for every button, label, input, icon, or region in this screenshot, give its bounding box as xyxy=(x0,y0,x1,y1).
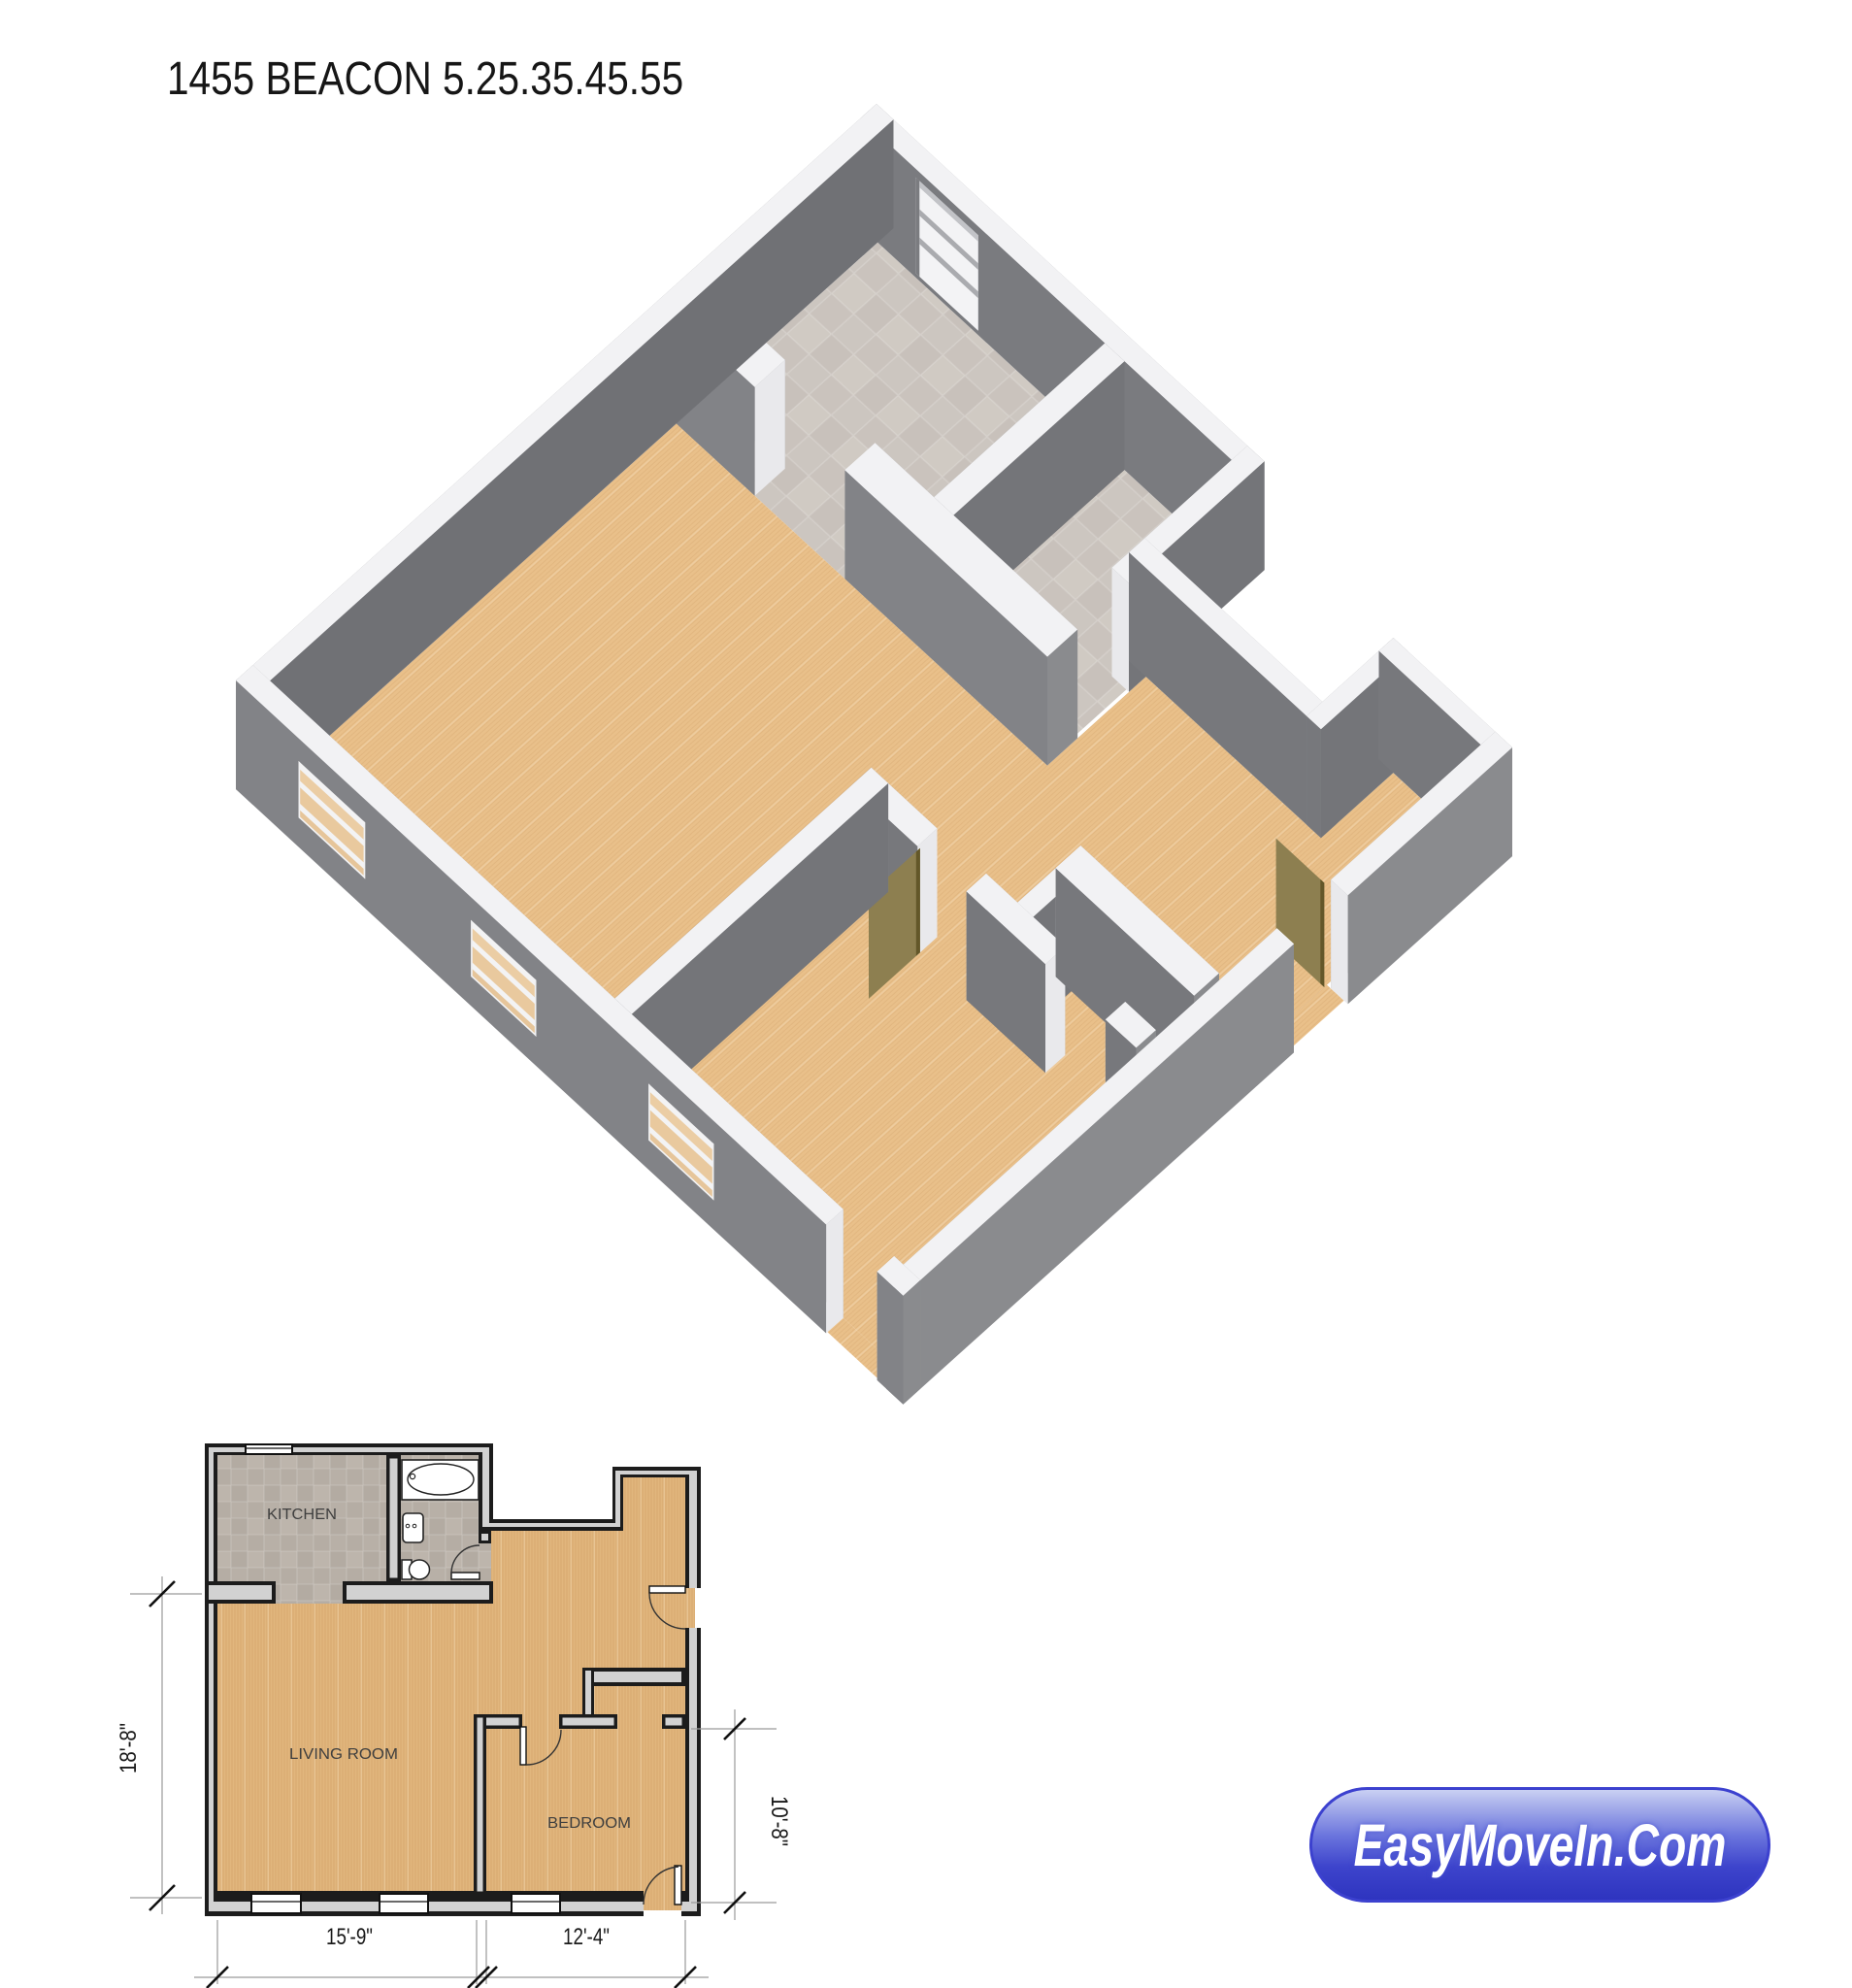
svg-text:10'-8": 10'-8" xyxy=(766,1796,792,1846)
svg-text:18'-8": 18'-8" xyxy=(116,1723,142,1773)
svg-text:BEDROOM: BEDROOM xyxy=(547,1815,631,1832)
svg-text:12'-4": 12'-4" xyxy=(563,1924,610,1950)
svg-text:15'-9": 15'-9" xyxy=(326,1924,373,1950)
svg-text:KITCHEN: KITCHEN xyxy=(267,1507,337,1523)
svg-text:LIVING ROOM: LIVING ROOM xyxy=(289,1746,398,1763)
